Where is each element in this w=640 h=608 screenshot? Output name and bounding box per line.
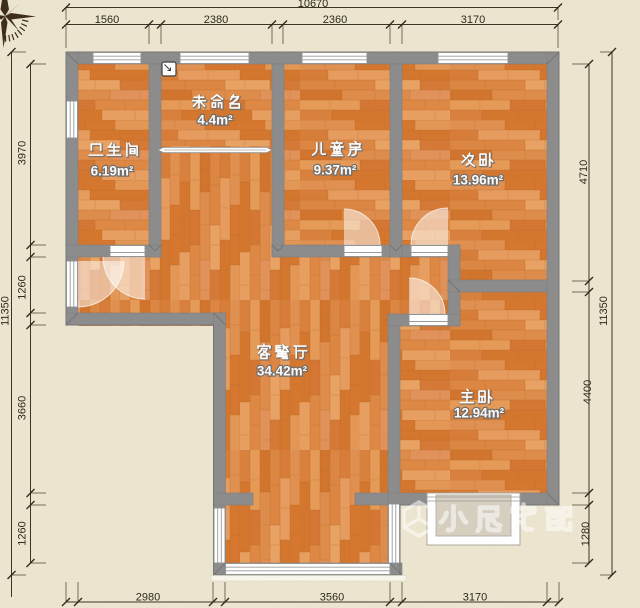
svg-text:34.42m²: 34.42m² [257, 364, 308, 379]
svg-text:1260: 1260 [17, 275, 29, 299]
svg-text:3660: 3660 [17, 396, 29, 420]
svg-text:13.96m²: 13.96m² [453, 173, 504, 188]
svg-text:3170: 3170 [463, 592, 487, 604]
svg-text:2360: 2360 [323, 14, 347, 26]
svg-text:4.4m²: 4.4m² [197, 113, 233, 128]
svg-text:2380: 2380 [204, 14, 228, 26]
svg-text:11350: 11350 [0, 296, 12, 326]
svg-text:10670: 10670 [298, 0, 329, 10]
svg-text:6.19m²: 6.19m² [91, 164, 134, 179]
svg-text:4400: 4400 [582, 380, 594, 404]
svg-text:3970: 3970 [17, 141, 29, 165]
svg-text:12.94m²: 12.94m² [454, 406, 505, 421]
svg-text:4710: 4710 [578, 160, 590, 184]
svg-text:11350: 11350 [598, 296, 610, 326]
svg-text:1260: 1260 [17, 521, 29, 545]
svg-text:3560: 3560 [320, 592, 344, 604]
svg-text:1560: 1560 [95, 14, 119, 26]
svg-text:1280: 1280 [580, 522, 592, 546]
svg-text:2980: 2980 [136, 592, 160, 604]
svg-text:3170: 3170 [461, 14, 485, 26]
svg-text:9.37m²: 9.37m² [314, 163, 357, 178]
